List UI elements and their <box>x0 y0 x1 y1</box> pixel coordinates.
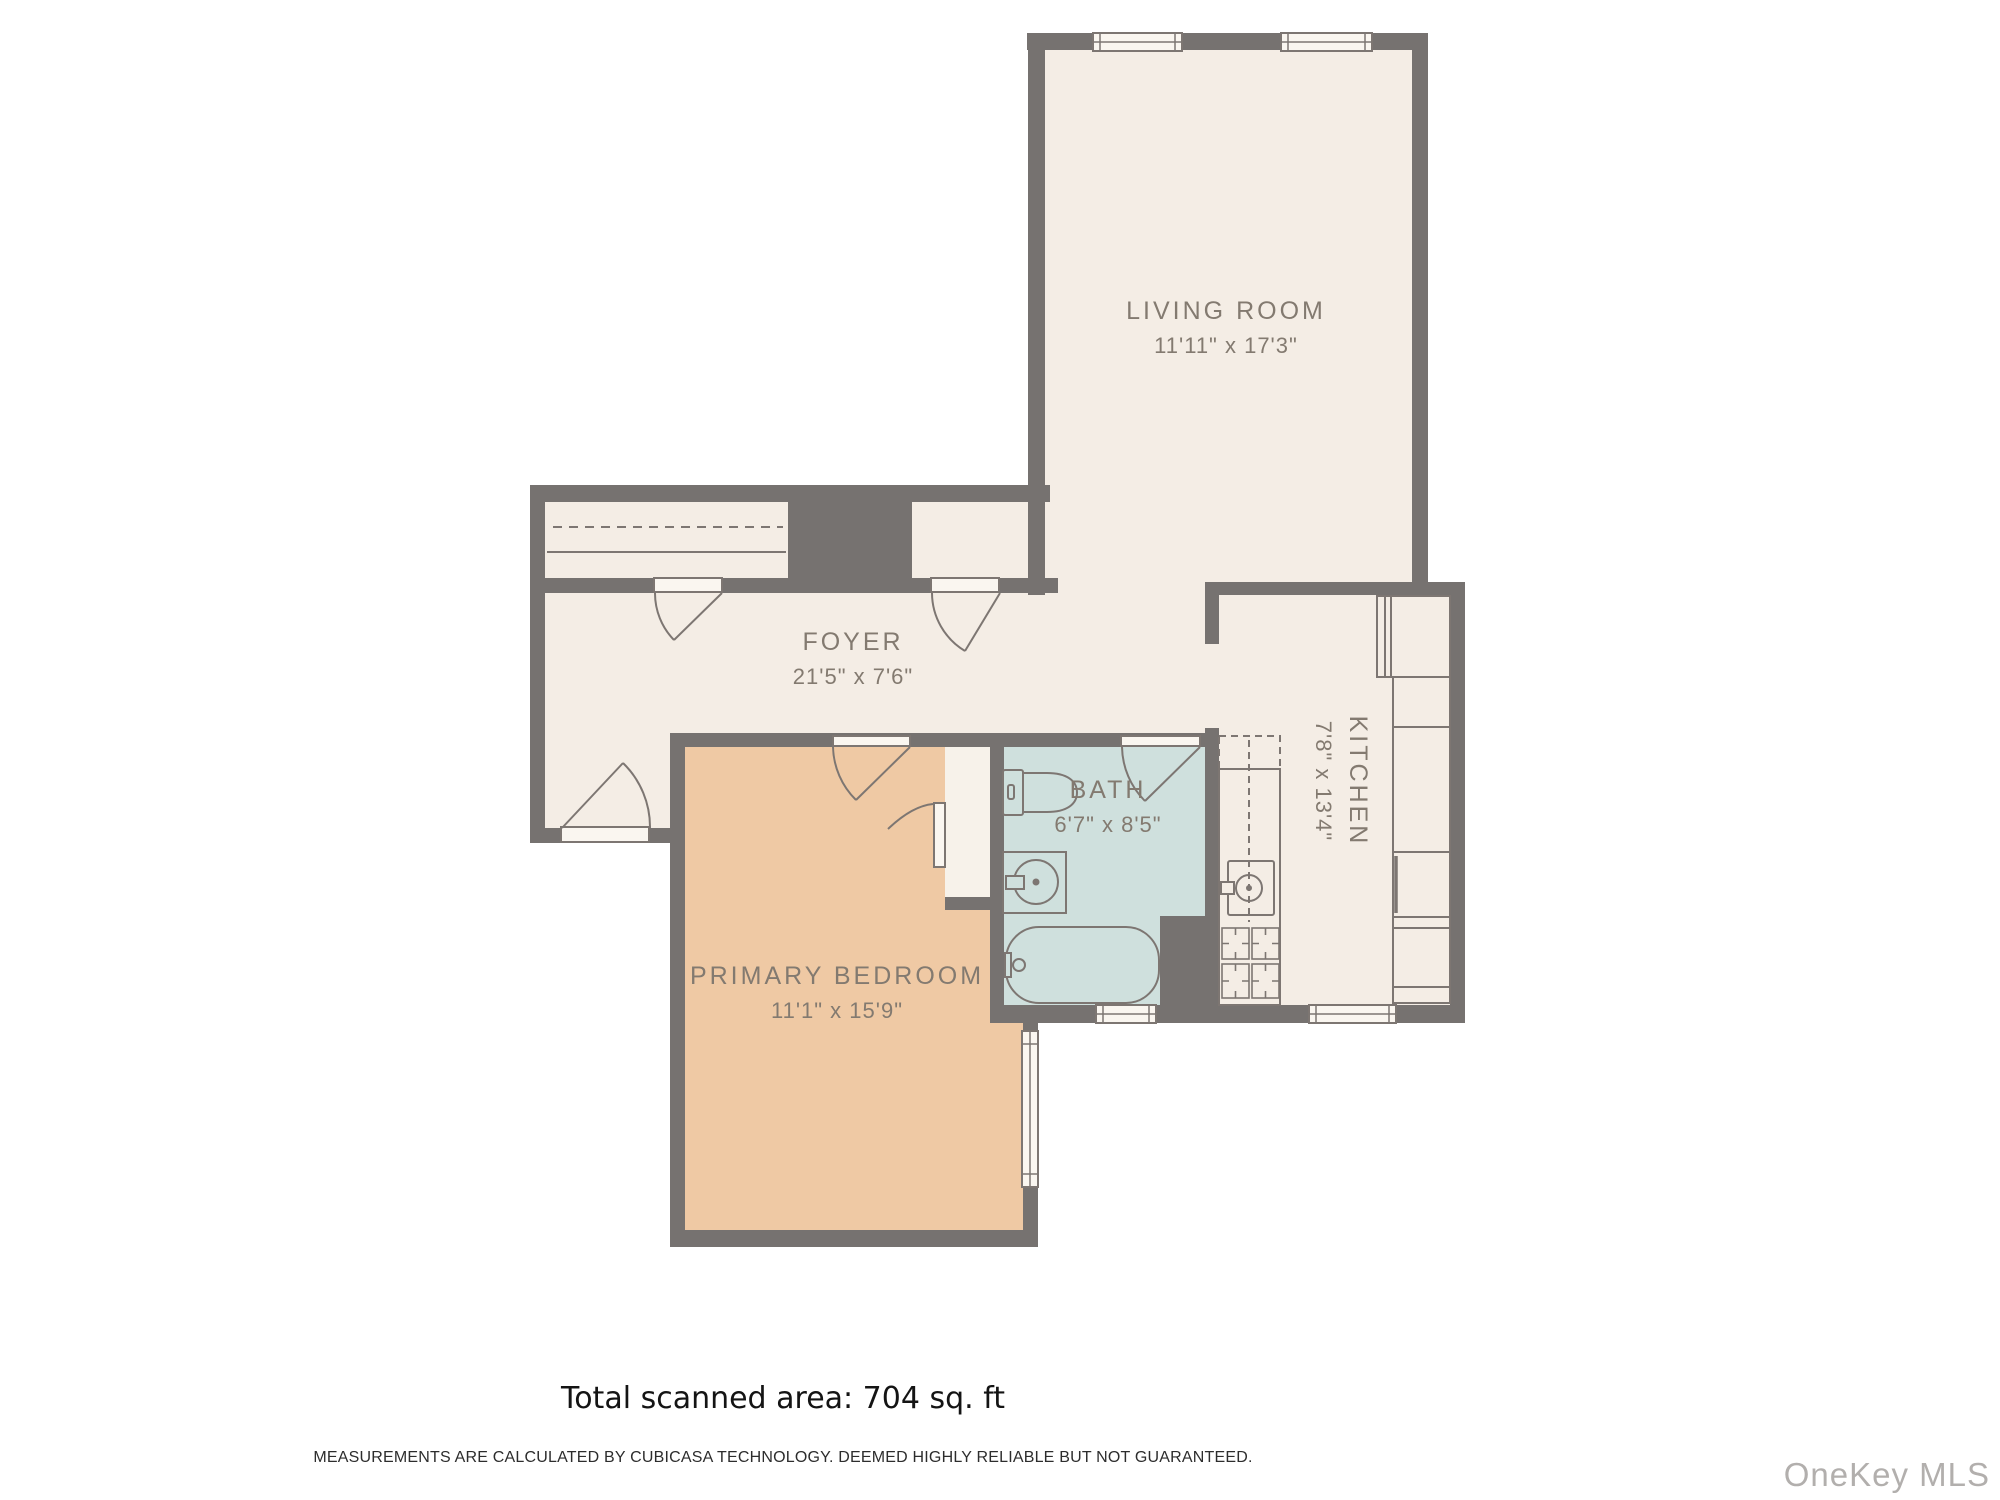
room-label-bath: BATH 6'7" x 8'5" <box>1008 776 1208 838</box>
wall <box>1205 582 1219 644</box>
window <box>1280 32 1373 52</box>
wall <box>670 1230 1038 1247</box>
wall <box>1205 582 1465 595</box>
disclaimer-text: MEASUREMENTS ARE CALCULATED BY CUBICASA … <box>283 1449 1283 1467</box>
room-dimensions: 11'11" x 17'3" <box>1046 333 1406 359</box>
wall <box>1028 33 1045 595</box>
floor-plan: LIVING ROOM 11'11" x 17'3" FOYER 21'5" x… <box>0 0 2000 1500</box>
room-name: PRIMARY BEDROOM <box>607 962 1067 991</box>
foyer-floor-lower <box>545 502 670 828</box>
room-label-primary-bedroom: PRIMARY BEDROOM 11'1" x 15'9" <box>607 962 1067 1024</box>
room-name: LIVING ROOM <box>1046 297 1406 326</box>
room-dimensions: 6'7" x 8'5" <box>1008 812 1208 838</box>
wall <box>530 485 545 843</box>
room-label-living-room: LIVING ROOM 11'11" x 17'3" <box>1046 297 1406 359</box>
room-name: BATH <box>1008 776 1208 805</box>
wall <box>788 500 912 593</box>
room-dimensions: 11'1" x 15'9" <box>607 998 1067 1024</box>
bath-door-threshold <box>1120 735 1201 747</box>
bedroom-closet-door-leaf <box>933 802 946 868</box>
entry-door-leaf <box>560 826 650 843</box>
onekey-mls-watermark: OneKey MLS <box>1784 1456 1990 1494</box>
bedroom-door-threshold <box>832 735 911 747</box>
room-label-foyer: FOYER 21'5" x 7'6" <box>673 628 1033 690</box>
foyer-closet-door-leaf <box>653 577 723 593</box>
bedroom-closet-floor <box>945 747 990 897</box>
window <box>1308 1004 1397 1024</box>
total-scanned-area: Total scanned area: 704 sq. ft <box>283 1381 1283 1416</box>
wall <box>1160 916 1220 1023</box>
room-name: KITCHEN <box>1343 666 1372 896</box>
room-dimensions: 21'5" x 7'6" <box>673 664 1033 690</box>
window <box>1092 32 1183 52</box>
kitchen-doorway <box>1205 644 1219 728</box>
foyer-closet2-door-leaf <box>930 577 1000 593</box>
window <box>1095 1004 1157 1024</box>
wall <box>1450 582 1465 1023</box>
wall <box>945 897 1004 910</box>
room-label-kitchen: KITCHEN 7'8" x 13'4" <box>1310 666 1372 896</box>
room-dimensions: 7'8" x 13'4" <box>1310 666 1336 896</box>
window <box>1021 1030 1039 1188</box>
room-name: FOYER <box>673 628 1033 657</box>
wall <box>1412 33 1428 595</box>
